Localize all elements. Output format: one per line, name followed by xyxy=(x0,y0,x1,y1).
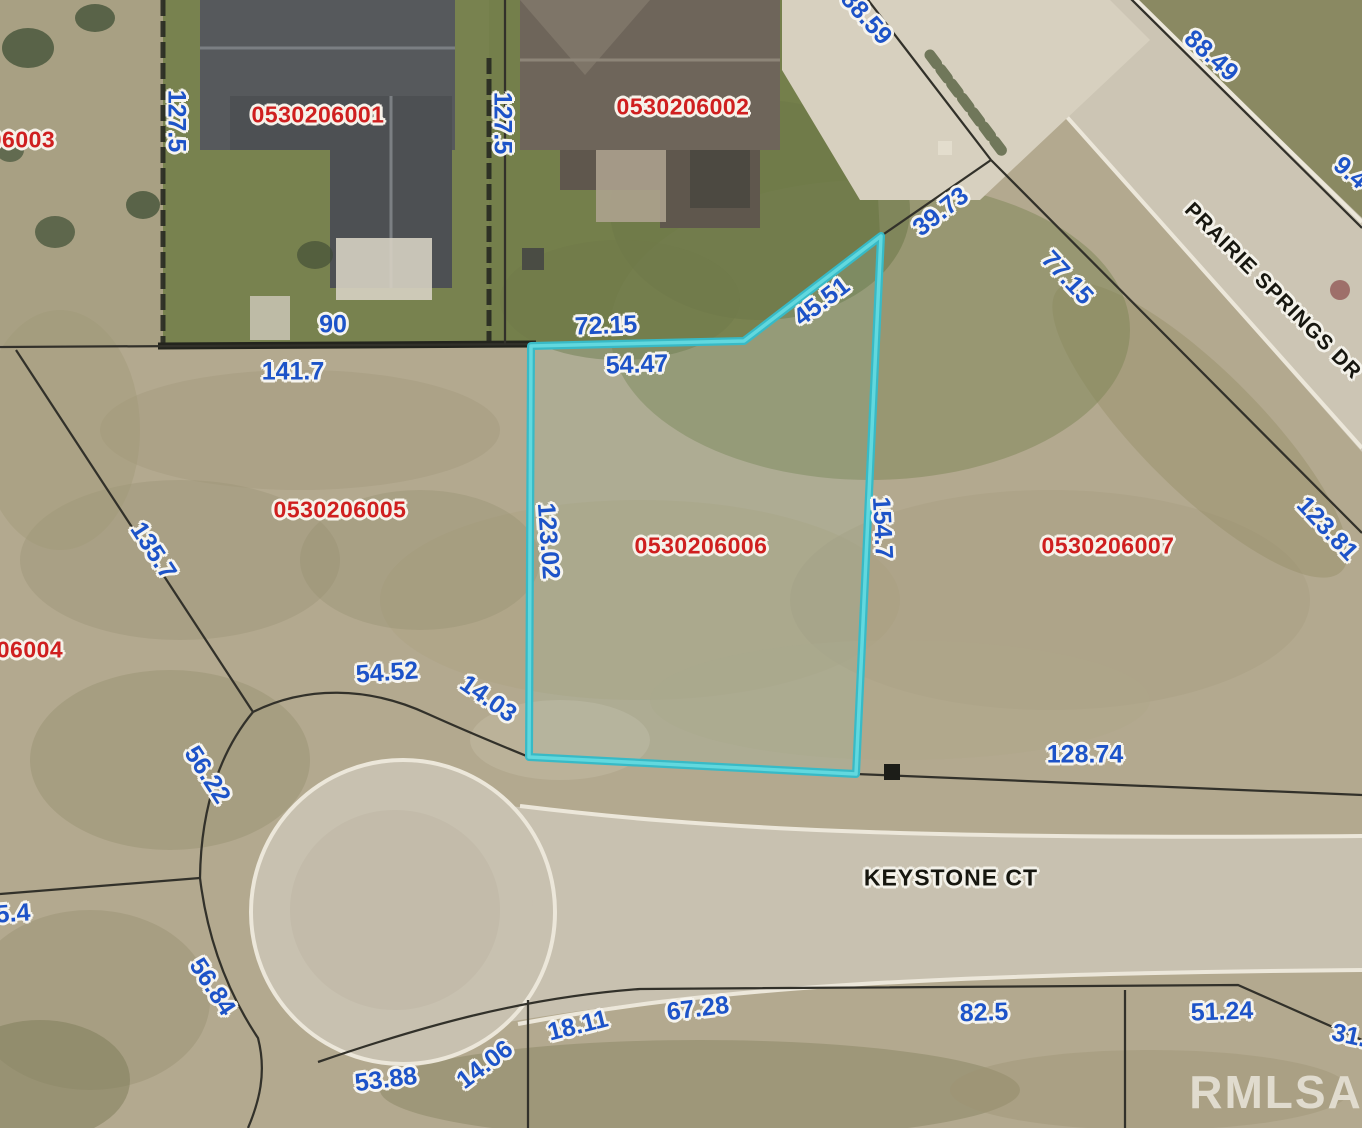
parcel-id-label: 0530206007 xyxy=(1042,535,1175,558)
dimension-label: 128.74 xyxy=(1047,743,1123,768)
dimension-label: 127.5 xyxy=(164,90,189,153)
dimension-label: 5.4 xyxy=(0,900,31,927)
dimension-label: 51.24 xyxy=(1190,998,1253,1025)
parcel-id-label: 0530206006 xyxy=(635,535,768,558)
watermark: RMLSA xyxy=(1189,1069,1362,1115)
dimension-label: 141.7 xyxy=(262,360,325,385)
parcel-id-label: 0530206005 xyxy=(274,499,407,522)
dimension-label: 82.5 xyxy=(959,1000,1009,1027)
street-label: KEYSTONE CT xyxy=(864,867,1038,890)
parcel-id-label: 0530206001 xyxy=(252,104,385,127)
dimension-label: 54.52 xyxy=(355,658,419,687)
parcel-id-label: 0530206002 xyxy=(617,96,750,119)
dimension-label: 123.02 xyxy=(533,502,563,580)
dimension-label: 90 xyxy=(319,313,347,338)
dimension-label: 72.15 xyxy=(574,312,637,339)
dimension-label: 54.47 xyxy=(605,351,668,378)
dimension-label: 127.5 xyxy=(490,92,515,155)
aerial-plat-map: 127.5 127.5 88.59 88.49 9.4 39.73 45.51 … xyxy=(0,0,1362,1128)
dimension-label: 154.7 xyxy=(868,496,896,560)
parcel-id-label: 06004 xyxy=(0,639,63,662)
parcel-id-label: 06003 xyxy=(0,129,55,152)
